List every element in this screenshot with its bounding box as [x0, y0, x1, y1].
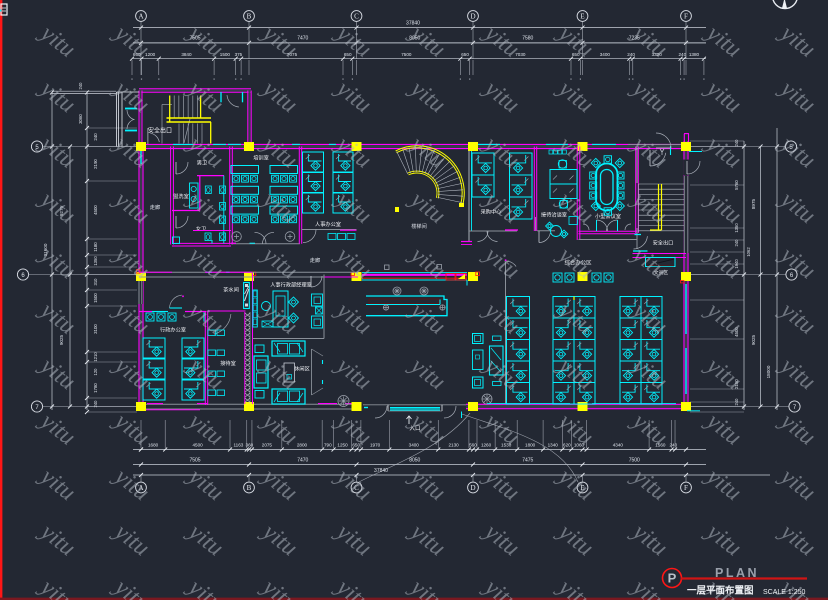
svg-text:7500: 7500	[401, 52, 412, 57]
svg-text:2075: 2075	[262, 443, 273, 448]
svg-text:2130: 2130	[448, 443, 459, 448]
svg-text:3400: 3400	[409, 443, 420, 448]
svg-text:1970: 1970	[370, 443, 381, 448]
svg-text:4340: 4340	[613, 443, 624, 448]
svg-text:3100: 3100	[93, 324, 98, 334]
svg-text:1380: 1380	[689, 52, 700, 57]
svg-text:1800: 1800	[525, 443, 536, 448]
svg-text:E: E	[580, 13, 584, 21]
svg-text:8975: 8975	[751, 198, 756, 209]
svg-text:2190: 2190	[93, 159, 98, 169]
svg-text:9025: 9025	[751, 334, 756, 345]
svg-text:安全出口: 安全出口	[653, 239, 674, 247]
svg-text:走廊: 走廊	[310, 256, 320, 264]
svg-text:1200: 1200	[145, 52, 156, 57]
svg-text:人事行政部经理室: 人事行政部经理室	[270, 281, 312, 289]
svg-text:行政办公室: 行政办公室	[160, 326, 186, 334]
svg-text:5760: 5760	[734, 180, 739, 190]
svg-text:1180: 1180	[93, 242, 98, 252]
svg-text:2800: 2800	[297, 443, 308, 448]
svg-text:7505: 7505	[189, 458, 200, 464]
svg-text:120: 120	[93, 368, 98, 376]
svg-text:7030: 7030	[515, 52, 526, 57]
svg-text:1163: 1163	[233, 443, 243, 448]
svg-text:1350: 1350	[93, 256, 98, 266]
svg-text:B: B	[247, 484, 252, 492]
svg-text:240: 240	[669, 443, 677, 448]
svg-text:小型会议室: 小型会议室	[595, 212, 621, 220]
svg-text:3060: 3060	[78, 114, 83, 124]
svg-text:F: F	[684, 484, 688, 492]
svg-text:D: D	[470, 13, 475, 21]
svg-text:375: 375	[235, 52, 243, 57]
svg-text:650: 650	[461, 52, 469, 57]
svg-text:4500: 4500	[93, 205, 98, 215]
svg-text:女卫: 女卫	[196, 225, 206, 233]
svg-text:7580: 7580	[522, 36, 533, 42]
svg-text:8050: 8050	[409, 458, 420, 464]
svg-text:3840: 3840	[181, 52, 192, 57]
svg-text:茶水间: 茶水间	[223, 286, 239, 294]
svg-text:7470: 7470	[297, 458, 308, 464]
svg-text:240: 240	[734, 239, 739, 247]
svg-text:240: 240	[678, 52, 686, 57]
svg-text:790: 790	[324, 443, 332, 448]
svg-text:SCALE 1:250: SCALE 1:250	[763, 589, 806, 596]
svg-text:人事办公室: 人事办公室	[315, 220, 341, 228]
svg-text:1500: 1500	[220, 52, 231, 57]
svg-text:240: 240	[78, 82, 83, 90]
svg-text:4500: 4500	[192, 443, 203, 448]
svg-text:1680: 1680	[148, 443, 159, 448]
svg-text:7500: 7500	[629, 458, 640, 464]
svg-text:3400: 3400	[600, 52, 611, 57]
svg-text:B: B	[247, 13, 252, 21]
svg-text:7475: 7475	[522, 458, 533, 464]
svg-text:D: D	[470, 484, 475, 492]
svg-text:1062: 1062	[746, 247, 751, 257]
svg-text:560: 560	[469, 443, 477, 448]
svg-text:安全出口: 安全出口	[148, 127, 172, 135]
svg-text:1500: 1500	[93, 293, 98, 303]
svg-text:240: 240	[627, 52, 635, 57]
svg-text:接待室: 接待室	[220, 359, 236, 367]
svg-text:620: 620	[563, 443, 571, 448]
svg-text:1340: 1340	[548, 443, 559, 448]
svg-text:一层平面布置图: 一层平面布置图	[687, 585, 754, 597]
svg-text:盥洗室: 盥洗室	[173, 192, 189, 200]
svg-text:1350: 1350	[734, 223, 739, 233]
svg-text:1260: 1260	[481, 443, 492, 448]
svg-text:1780: 1780	[93, 383, 98, 393]
svg-text:P: P	[668, 571, 677, 586]
svg-text:18000: 18000	[766, 365, 771, 378]
svg-text:楼梯间: 楼梯间	[411, 222, 427, 230]
svg-text:310: 310	[93, 278, 98, 286]
svg-text:F: F	[684, 13, 688, 21]
svg-text:C: C	[354, 13, 359, 21]
svg-text:A: A	[138, 13, 143, 21]
svg-text:240: 240	[734, 398, 739, 406]
svg-text:1210: 1210	[93, 352, 98, 362]
svg-text:240: 240	[93, 133, 98, 141]
svg-text:1250: 1250	[337, 443, 348, 448]
